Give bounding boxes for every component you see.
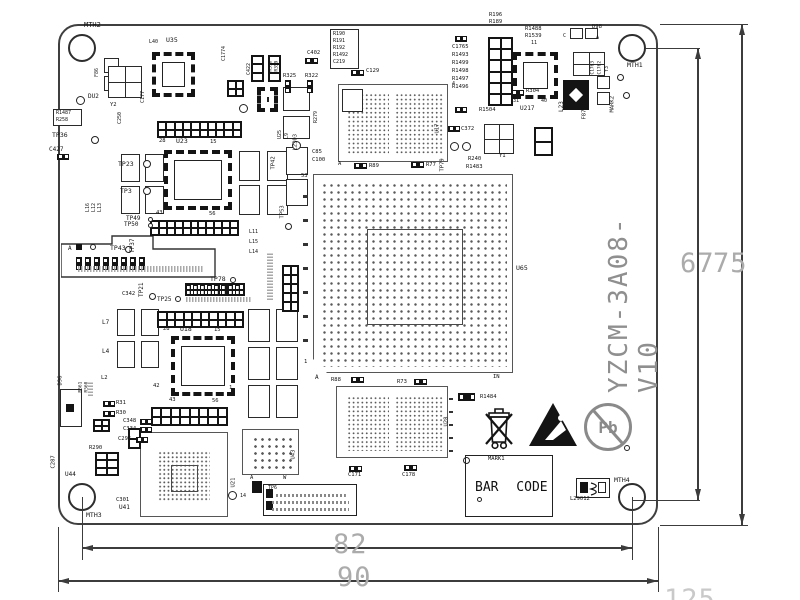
label-r1483: R1483 [466,165,483,171]
label-u17: U17 [436,123,442,133]
connector-pad [209,409,216,416]
dimension-label-82: 82 [333,531,368,558]
connector-pad [270,74,279,80]
label-l13: L13 [98,203,103,212]
chip-resistor [455,36,467,42]
test-point [617,74,624,81]
connector-pad [502,61,512,70]
extension-line [646,48,700,49]
label-c296: C296 [118,437,131,443]
connector-pad [207,222,213,227]
label-c250: C250 [118,112,123,124]
label-u44: U44 [65,472,76,478]
test-point [76,96,85,105]
weee-bin-icon [482,404,516,452]
label-u35: U35 [166,37,178,44]
chip-resistor [136,437,148,443]
chip-resistor [411,162,424,168]
chip-resistor [103,411,115,417]
label-y3: Y3 [605,66,610,72]
label-r1499: R1499 [452,61,469,67]
chip-resistor [351,70,364,76]
chip-resistor [140,419,152,425]
label-y2: Y2 [110,103,117,109]
l29012-pad-dark [580,482,588,493]
label-c219: C219 [333,60,345,65]
chip-resistor [285,80,291,93]
mounting-hole-mth2 [68,34,96,62]
passive-part [276,309,298,342]
test-point [285,223,292,230]
chip-resistor [354,163,367,169]
label-11: 11 [531,41,537,46]
connector-pad [284,303,290,310]
label-c1765: C1765 [452,45,469,51]
connector-pad [219,409,226,416]
pad-tick [449,437,453,439]
label-u43: U43 [292,449,298,459]
passive-part [286,179,308,206]
chip-resistor [186,284,191,295]
label-r31: R31 [116,401,126,407]
connector-pad [192,131,198,137]
label-c1774: C1774 [222,46,227,61]
label-u23: U23 [176,138,188,145]
test-point [90,244,96,250]
connector-pad [201,123,207,129]
connector-pad [490,50,500,59]
chip-resistor [235,284,240,295]
label-f87: F87 [583,109,589,119]
connector-pad [236,313,243,319]
connector-pad [210,313,217,319]
connector-pad [108,469,117,474]
connector-pad [152,222,158,227]
connector-pad [152,229,158,234]
label-c402: C402 [307,51,320,57]
label-tp23: TP23 [118,161,134,168]
connector-pad [184,131,190,137]
connector-pad [168,222,174,227]
label-u28: U28 [445,416,451,426]
label-c287: C287 [52,455,58,468]
barcode-text: BAR CODE [475,480,548,495]
dimension-arrow [695,489,701,500]
label-l9: L9 [285,133,290,139]
connector-pad [167,123,173,129]
connector-pad [193,321,200,327]
label-r191: R191 [333,39,345,44]
connector [282,265,299,312]
label-l2: L2 [101,376,108,382]
connector-pad [184,222,190,227]
label-r561: R561 [80,381,85,392]
chip-resistor [200,284,205,295]
connector-pad [219,321,226,327]
extension-line [632,497,633,560]
connector-pad [219,418,226,425]
label-r77: R77 [426,163,436,169]
connector-pad [292,285,298,292]
test-point [148,217,153,222]
connector-pad [192,123,198,129]
connector-pad [234,123,240,129]
dimension-label-90: 90 [337,564,372,591]
connector-pad [284,285,290,292]
connector [251,55,264,82]
connector-pad [231,229,237,234]
connector [488,37,513,106]
passive-part [286,147,308,175]
qfn-body [523,62,548,89]
label-r240: R240 [468,157,481,163]
connector-pad [231,222,237,227]
chip-resistor [511,90,524,96]
connector [151,407,228,426]
connector-pad [229,82,235,88]
connector-pad [192,229,198,234]
connector-pad [536,129,551,141]
label-r189: R189 [489,20,502,26]
label-tp6: TP6 [268,486,277,491]
label-d96: D96 [59,375,65,385]
chip-resistor [455,107,467,113]
passive-part [248,385,270,418]
label-r1487: R1487 [56,111,71,116]
label-r1492: R1492 [333,53,348,58]
connector-pad [502,50,512,59]
connector-pad [225,123,231,129]
label-40: 40 [541,99,547,104]
label-r1539: R1539 [525,34,542,40]
connector-pad [490,61,500,70]
connector-pad [201,131,207,137]
passive-part [570,28,583,39]
micro-text-strip [78,266,204,272]
label-c422: C422 [247,63,252,75]
micro-text-strip [186,297,252,302]
test-point [462,142,471,151]
test-point [230,277,236,283]
connector-pad [185,313,192,319]
connector-pad [159,313,166,319]
connector-pad [200,418,207,425]
connector-pad [234,131,240,137]
label-15: 15 [210,140,217,146]
label-u25: U25 [278,130,283,139]
label-r1498: R1498 [452,69,469,75]
connector-pad [236,321,243,327]
label-c85: C85 [312,150,322,156]
label-u65: U65 [516,265,528,272]
label-r1484: R1484 [480,395,497,401]
pad-tick [303,339,308,342]
solder-pad [76,244,82,250]
chip-resistor [305,58,318,64]
connector [93,419,110,432]
pb-free-icon: Pb [582,401,634,453]
connector-pad [253,57,262,63]
connector-pad [193,313,200,319]
chip-resistor [57,154,69,160]
label-r290: R290 [89,446,102,452]
label-mark1: MARK1 [488,457,505,463]
label-tp42: TP42 [272,156,278,169]
connector [227,80,244,97]
label-u21: U21 [232,477,238,487]
connector-pad [284,276,290,283]
pad-tick [449,450,453,452]
connector-pad [237,82,243,88]
crystal-part [484,124,514,154]
crystal-part [108,66,142,98]
label-r304: R304 [526,89,539,95]
label-a: A [315,375,319,381]
chip-resistor [404,465,417,471]
connector-pad [159,123,165,129]
qfn-chip [257,87,278,112]
connector-pad [153,418,160,425]
connector-pad [103,427,109,431]
pad-tick [303,315,308,318]
label-15: 15 [214,328,221,334]
passive-part [276,347,298,380]
label-r560: R560 [86,381,91,392]
connector-pad [237,90,243,96]
passive-part [248,347,270,380]
l29012-pad-light [598,482,606,493]
label-c1763: C1763 [592,60,597,74]
qfn-body [181,346,225,386]
test-point [148,223,153,228]
label-r73: R73 [397,380,407,386]
connector-pad [502,39,512,48]
test-point [91,136,99,144]
label-tp43: TP43 [110,245,126,252]
label-14: 14 [240,494,246,499]
test-point [228,491,237,500]
label-28: 28 [159,139,166,145]
l29012-inductor [576,478,610,498]
connector-pad [292,276,298,283]
connector-pad [103,421,109,425]
chip-resistor [193,284,198,295]
connector-pad [219,313,226,319]
chip-resistor [307,80,313,93]
connector-pad [191,418,198,425]
label-mth4: MTH4 [614,477,630,484]
connector-pad [176,313,183,319]
dimension-arrow [695,48,701,59]
connector-pad [160,222,166,227]
chip-resistor [207,284,212,295]
bga-ball-grid [395,396,443,451]
connector-pad [284,294,290,301]
label-43: 43 [169,398,176,404]
label-1: 1 [304,360,307,366]
chip-resistor [221,284,226,295]
esd-warning-icon [527,401,579,448]
board-title: YZCM-3A08-V10 [604,197,664,393]
label-r88: R88 [331,378,341,384]
label-42: 42 [153,384,160,390]
label-c178: C178 [402,473,415,479]
connector-pad [192,222,198,227]
connector-pad [184,123,190,129]
label-mth2: MTH2 [84,22,101,29]
label-l2303: L2303 [294,133,300,150]
dimension-label-partial: 125 [664,586,716,600]
qfn-chip [164,150,232,210]
chip-resistor [214,284,219,295]
connector-pad [209,123,215,129]
label-u41: U41 [119,505,130,511]
connector-pad [162,409,169,416]
dimension-arrow [621,545,632,551]
label-l15: L15 [249,240,258,245]
connector-pad [199,222,205,227]
pad-tick [449,411,453,413]
passive-part [248,309,270,342]
passive-part [121,154,140,182]
label-tp53: TP53 [281,205,287,218]
label-53: 53 [301,174,308,180]
connector-pad [284,267,290,274]
test-point [149,293,156,300]
test-point [450,142,459,151]
label-r1493: R1493 [452,53,469,59]
chip-resistor [414,379,427,385]
connector-pad [502,95,512,104]
label-l14: L14 [249,250,258,255]
label-c348: C348 [123,419,136,425]
label-c372: C372 [461,127,474,133]
label-c1762: C1762 [599,60,604,74]
label-f86: F86 [95,68,100,77]
connector-pad [168,229,174,234]
chip-resistor [458,393,475,401]
connector-pad [168,313,175,319]
label-a: A [250,476,253,482]
label-r89: R89 [369,164,379,170]
dimension-arrow [647,578,658,584]
label-mth1: MTH1 [627,62,643,69]
dimension-arrow [739,514,745,525]
test-point [239,104,248,113]
connector-pad [292,267,298,274]
chip-resistor [140,427,152,433]
label-du2: DU2 [88,94,99,100]
dimension-arrow [739,24,745,35]
label-r316: R316 [270,60,275,71]
chip-resistor [228,284,233,295]
pad-tick [303,267,308,270]
label-28: 28 [163,327,170,333]
label-c129: C129 [366,69,379,75]
connector-pad [210,321,217,327]
dimension-label-67: 67 [680,250,715,277]
label-c301: C301 [116,498,129,504]
label-u217: U217 [520,106,534,112]
chip-resistor [103,401,115,407]
label-a: A [596,36,599,41]
extension-line [82,497,83,560]
pad-tick [449,398,453,400]
label-c171: C171 [348,473,361,479]
chip-resistor [351,377,364,383]
passive-part [145,154,164,182]
connector [150,220,239,236]
qfn-chip [171,336,235,396]
bga-inner-outline [367,229,463,325]
connector-pad [209,418,216,425]
passive-part [342,89,363,112]
label-c427: C427 [49,147,63,153]
dimension-arrow [58,578,69,584]
solder-pad [66,404,74,412]
connector-pad [184,229,190,234]
label-l4: L4 [102,349,109,355]
connector-pad [292,303,298,310]
label-mark2: MARK2 [611,95,617,112]
label-c342: C342 [122,292,135,298]
label-43: 43 [156,211,163,217]
qfn-body [174,160,222,200]
label-a: A [68,246,72,252]
connector-pad [253,65,262,71]
connector [534,127,553,156]
label-4: 4 [452,82,455,87]
connector-pad [181,409,188,416]
pad-tick [303,243,308,246]
connector-pad [490,84,500,93]
label-tp37: TP37 [130,239,136,253]
passive-part [597,76,610,89]
connector-pad [172,409,179,416]
label-c334: C334 [123,427,136,433]
connector-pad [215,229,221,234]
label-y1: Y1 [499,154,506,160]
connector-pad [176,222,182,227]
connector-pad [217,123,223,129]
connector-pad [95,427,101,431]
test-point [143,187,151,195]
bga-ball-grid [252,436,293,471]
micro-text-strip [267,252,273,300]
label-c177: C177 [141,91,146,103]
connector-pad [209,131,215,137]
label-31: 31 [513,99,519,104]
dimension-arrow [82,545,93,551]
label-mth3: MTH3 [86,512,102,519]
bga-footprint [336,386,448,458]
label-r279: R279 [314,111,319,123]
label-r1488: R1488 [525,27,542,33]
label-l7: L7 [102,320,109,326]
label-r322: R322 [305,74,318,80]
label-l11: L11 [249,230,258,235]
label-l23: L23 [559,101,565,112]
label-56: 56 [212,399,219,405]
l23-inductor [563,80,589,110]
passive-part [117,341,135,368]
connector-pad [200,409,207,416]
connector-pad [97,469,106,474]
connector-pad [97,454,106,459]
connector-pad [199,229,205,234]
label-tp21: TP21 [139,283,145,297]
qfn-body [162,62,185,87]
